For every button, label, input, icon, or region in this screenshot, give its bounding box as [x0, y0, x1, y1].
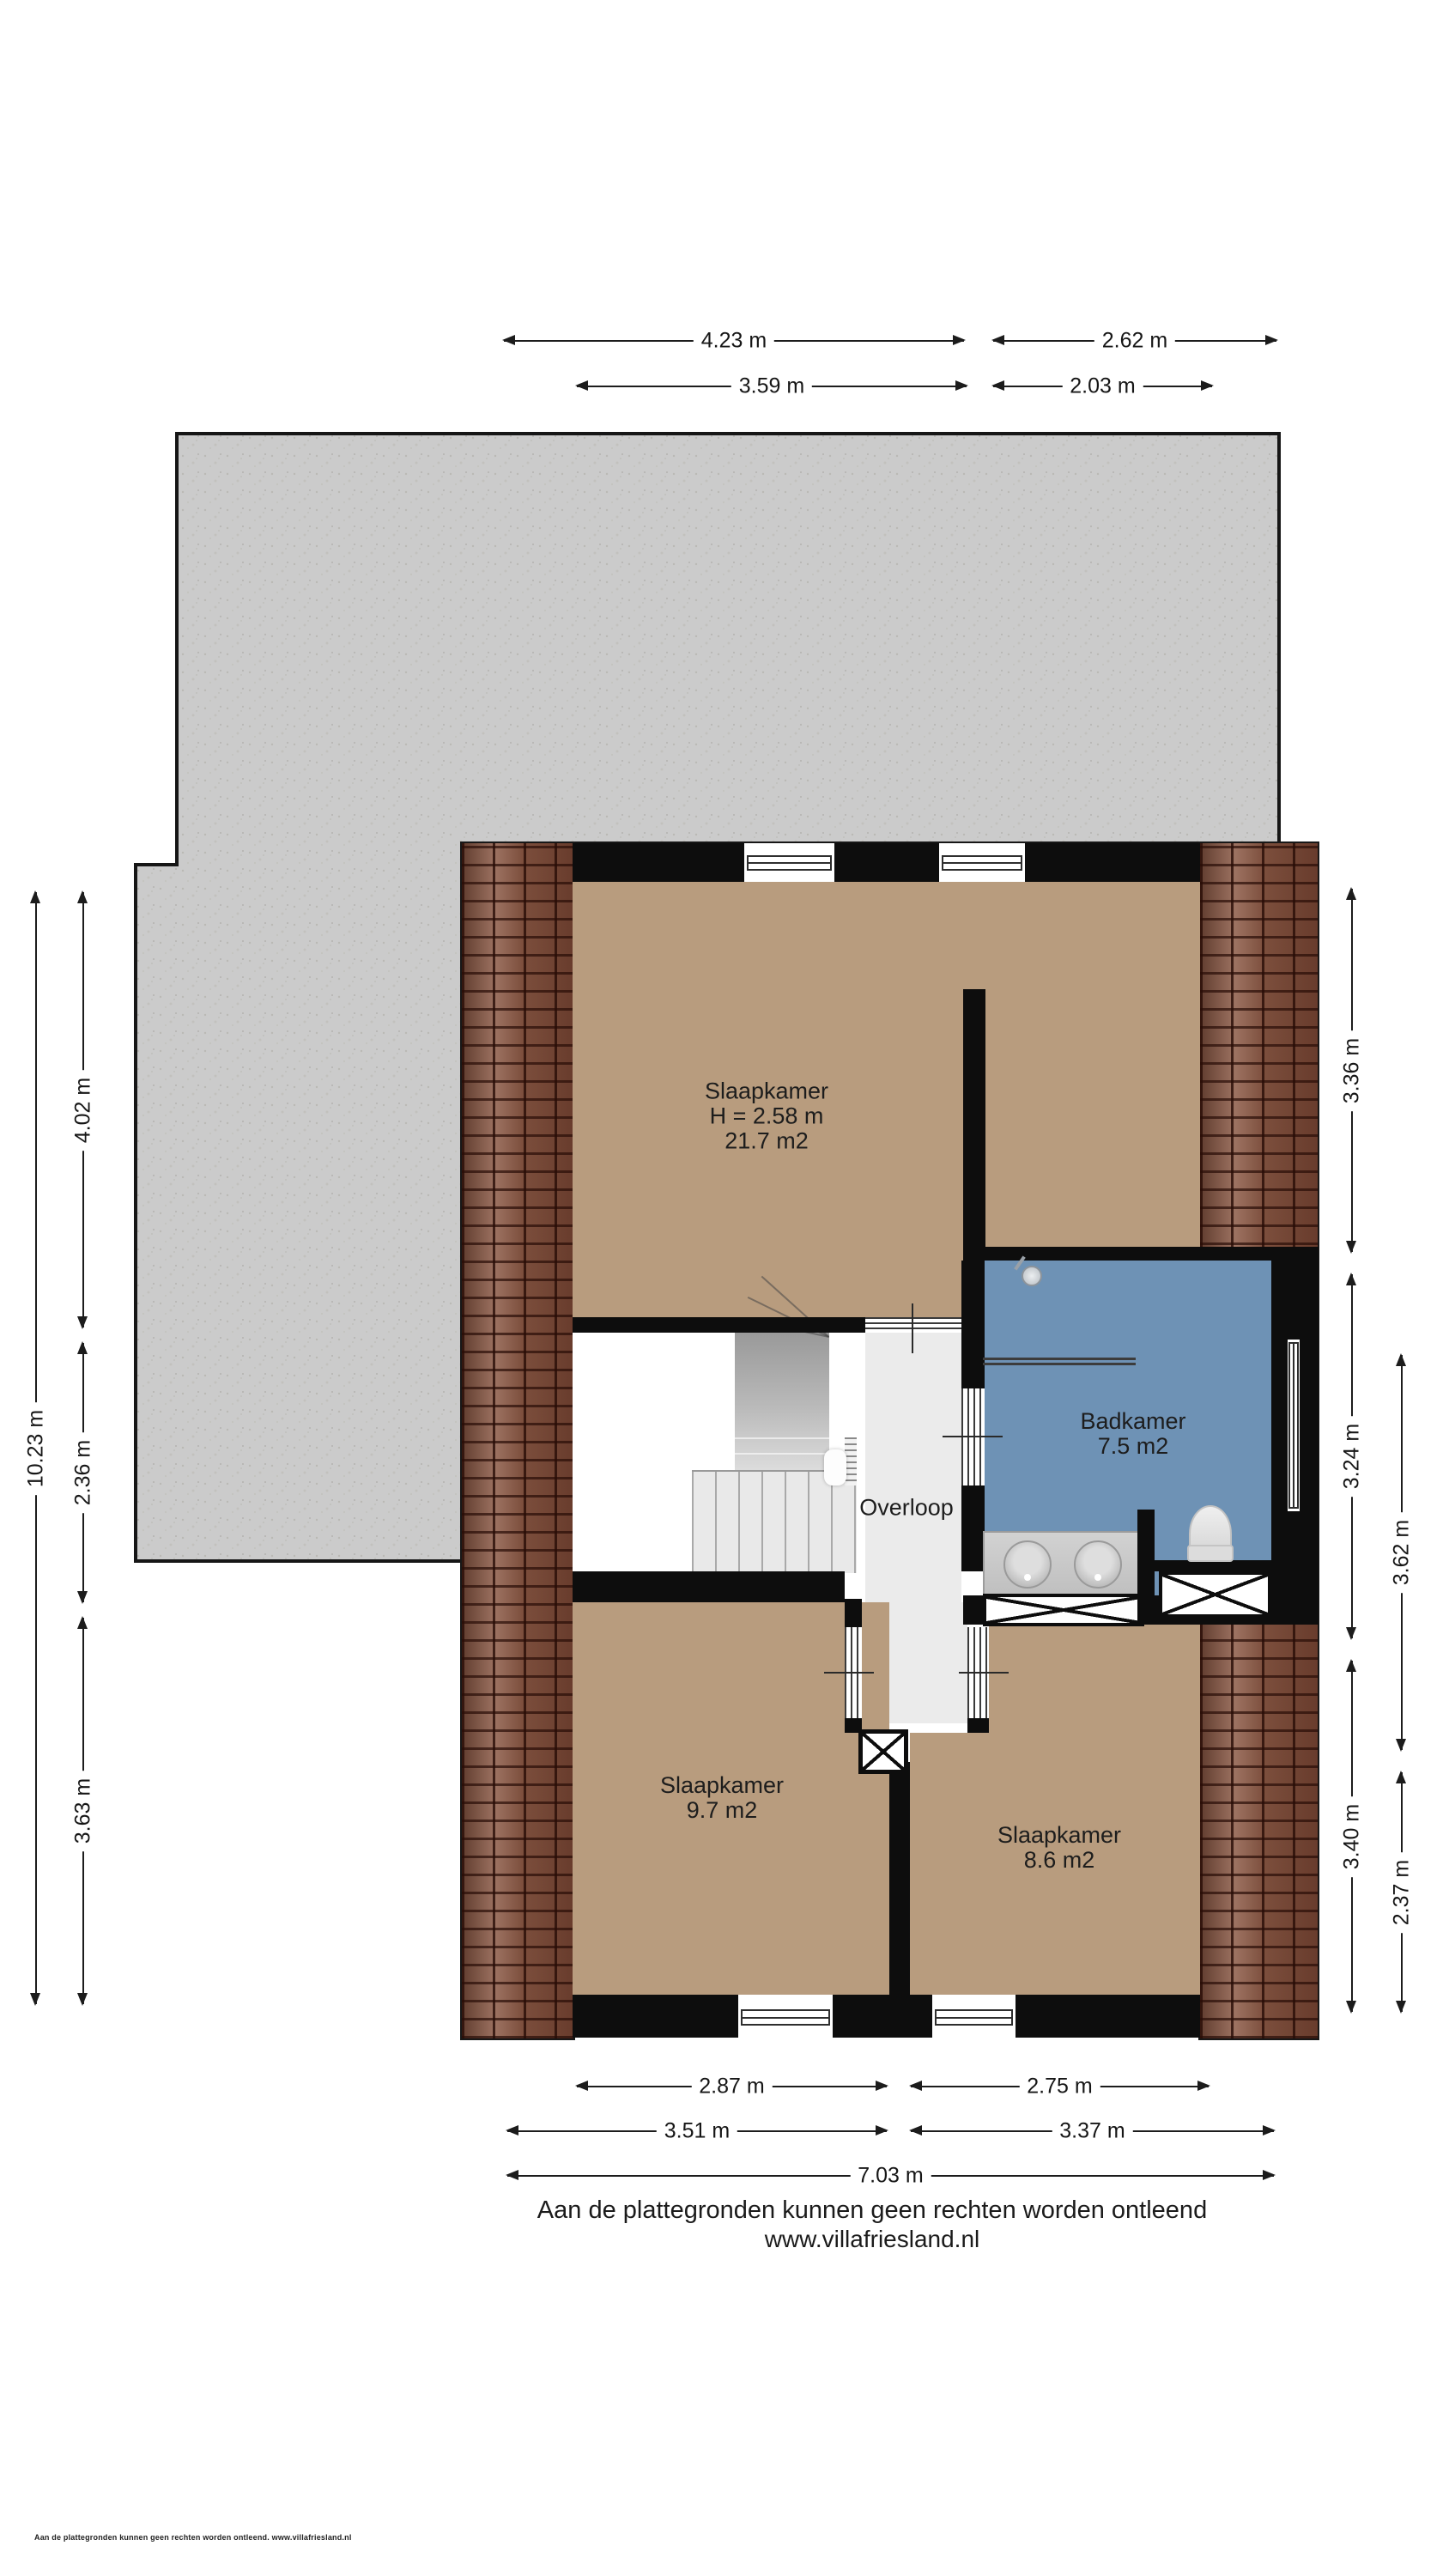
- room-label-landing: Overloop: [859, 1496, 954, 1521]
- dim-left-top: 4.02 m: [76, 890, 90, 1329]
- stairs-winder: [735, 1327, 829, 1470]
- dim-right-outer-top: 3.62 m: [1395, 1353, 1409, 1752]
- floor-bedroom-main: [573, 882, 1200, 1247]
- room-label-bedroom-main: Slaapkamer H = 2.58 m 21.7 m2: [705, 1079, 828, 1154]
- door-line-bedroom-right: [959, 1672, 1009, 1674]
- stairs-treads: [692, 1470, 857, 1573]
- room-name: Overloop: [859, 1496, 954, 1521]
- dim-top-outer-left: 4.23 m: [502, 334, 966, 348]
- dim-top-outer-right: 2.62 m: [991, 334, 1278, 348]
- window-bathroom-right: [1288, 1340, 1300, 1511]
- wall-bathroom-left-lower: [961, 1485, 985, 1571]
- shower-icon: [1022, 1266, 1042, 1286]
- stairs-handrail-end: [824, 1449, 846, 1485]
- vanity-counter: [983, 1531, 1141, 1597]
- footer: Aan de plattegronden kunnen geen rechten…: [295, 2196, 1449, 2253]
- wall-void-bottom: [573, 1571, 845, 1602]
- toilet-seat: [1187, 1545, 1234, 1562]
- dim-top-inner-left: 3.59 m: [575, 380, 968, 393]
- wall-center-bedrooms: [889, 1762, 910, 1995]
- window-top-left: [744, 843, 834, 882]
- floorplan-page: Slaapkamer H = 2.58 m 21.7 m2 Badkamer 7…: [0, 0, 1449, 2576]
- shower-partition: [983, 1358, 1136, 1365]
- dim-bottom-total: 7.03 m: [506, 2169, 1276, 2183]
- wall-interior-vertical: [963, 989, 985, 1247]
- footer-website: www.villafriesland.nl: [295, 2225, 1449, 2253]
- wall-toilet-stub: [1137, 1510, 1155, 1625]
- window-bottom-left: [738, 1995, 833, 2038]
- smallprint-disclaimer: Aan de plattegronden kunnen geen rechten…: [34, 2533, 352, 2542]
- room-area: 8.6 m2: [997, 1848, 1121, 1873]
- room-label-bedroom-left: Slaapkamer 9.7 m2: [660, 1773, 784, 1823]
- door-opening-bedroom-main: [865, 1317, 963, 1333]
- window-bottom-right: [932, 1995, 1016, 2038]
- wall-landing-right-lower: [967, 1718, 989, 1733]
- stairs-railing: [845, 1437, 857, 1485]
- room-area: 9.7 m2: [660, 1798, 784, 1823]
- dim-right-outer-bottom: 2.37 m: [1395, 1771, 1409, 2014]
- dim-left-mid: 2.36 m: [76, 1341, 90, 1604]
- wall-top: [573, 843, 1200, 882]
- wall-void-top: [573, 1317, 865, 1333]
- door-line-bedroom-main: [912, 1303, 913, 1353]
- dim-bottom-inner-right: 2.75 m: [909, 2080, 1210, 2093]
- dim-right-mid: 3.24 m: [1345, 1273, 1359, 1640]
- dim-right-top: 3.36 m: [1345, 887, 1359, 1254]
- dim-right-bottom: 3.40 m: [1345, 1659, 1359, 2014]
- sink-icon-right: [1074, 1540, 1122, 1589]
- room-name: Slaapkamer: [997, 1823, 1121, 1848]
- door-line-bathroom: [943, 1436, 1003, 1437]
- room-name: Slaapkamer: [705, 1079, 828, 1104]
- room-area: 21.7 m2: [705, 1129, 828, 1154]
- roof-tiles-left: [462, 843, 573, 2038]
- wall-landing-left-upper: [845, 1599, 862, 1627]
- wall-bottom: [573, 1995, 1200, 2038]
- floor-landing-upper: [865, 1333, 961, 1625]
- dim-bottom-mid-left: 3.51 m: [506, 2124, 888, 2138]
- vanity-x-box: [983, 1594, 1144, 1626]
- closet-x-box: [858, 1729, 908, 1774]
- footer-disclaimer: Aan de plattegronden kunnen geen rechten…: [295, 2196, 1449, 2225]
- window-top-right: [939, 843, 1025, 882]
- dim-left-bottom: 3.63 m: [76, 1616, 90, 2006]
- room-label-bedroom-right: Slaapkamer 8.6 m2: [997, 1823, 1121, 1873]
- dim-bottom-inner-left: 2.87 m: [575, 2080, 888, 2093]
- room-name: Badkamer: [1080, 1409, 1185, 1434]
- room-area: 7.5 m2: [1080, 1434, 1185, 1459]
- room-ceiling-height: H = 2.58 m: [705, 1104, 828, 1129]
- wall-bathroom-left-upper: [961, 1261, 985, 1388]
- shower-x-box: [1159, 1571, 1271, 1618]
- sink-icon-left: [1003, 1540, 1052, 1589]
- room-label-bathroom: Badkamer 7.5 m2: [1080, 1409, 1185, 1459]
- dim-top-inner-right: 2.03 m: [991, 380, 1214, 393]
- dim-bottom-mid-right: 3.37 m: [909, 2124, 1276, 2138]
- floor-bedroom-right-upper: [989, 1625, 1200, 1733]
- dim-left-total: 10.23 m: [29, 890, 43, 2006]
- door-line-bedroom-left: [824, 1672, 874, 1674]
- room-name: Slaapkamer: [660, 1773, 784, 1798]
- wall-bathroom-top: [963, 1247, 1319, 1261]
